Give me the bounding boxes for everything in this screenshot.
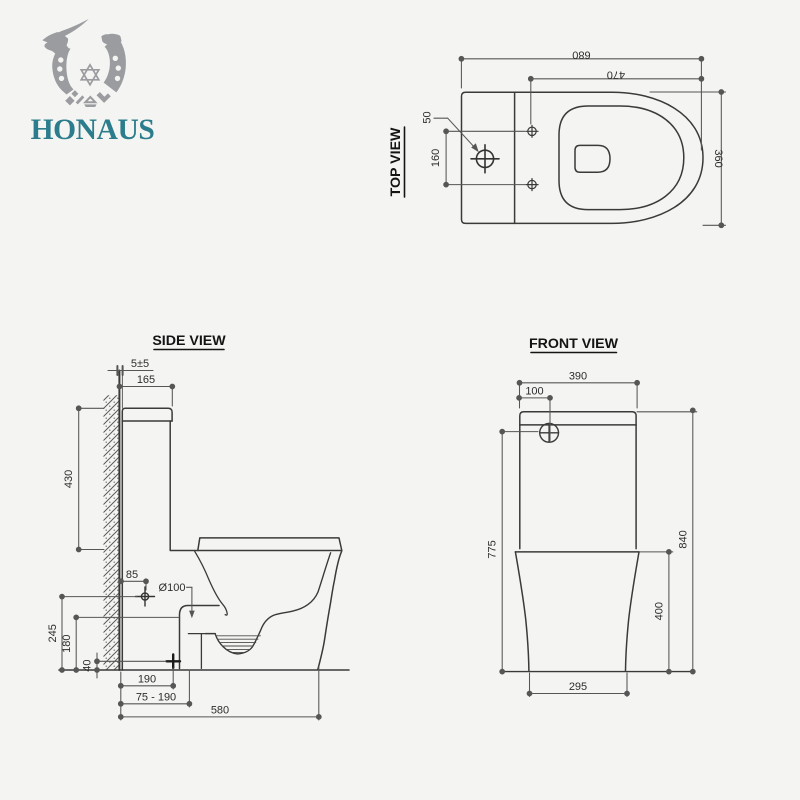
svg-text:HONAUS: HONAUS — [31, 114, 155, 146]
svg-text:840: 840 — [677, 530, 689, 548]
svg-text:680: 680 — [572, 49, 590, 61]
svg-text:50: 50 — [422, 111, 434, 123]
svg-text:430: 430 — [63, 470, 75, 488]
svg-text:580: 580 — [211, 705, 229, 717]
svg-text:400: 400 — [653, 602, 665, 620]
svg-text:40: 40 — [82, 659, 94, 671]
svg-text:FRONT VIEW: FRONT VIEW — [529, 336, 619, 352]
svg-text:TOP VIEW: TOP VIEW — [388, 127, 404, 196]
svg-text:SIDE VIEW: SIDE VIEW — [152, 333, 226, 349]
svg-text:390: 390 — [569, 370, 587, 382]
svg-text:190: 190 — [138, 673, 156, 685]
svg-text:75 - 190: 75 - 190 — [136, 691, 176, 703]
svg-text:100: 100 — [525, 386, 543, 398]
svg-text:85: 85 — [126, 569, 138, 581]
svg-text:470: 470 — [607, 69, 625, 81]
svg-text:160: 160 — [430, 149, 442, 167]
svg-text:165: 165 — [137, 374, 155, 386]
svg-text:295: 295 — [569, 681, 587, 693]
svg-text:245: 245 — [47, 624, 59, 642]
svg-text:180: 180 — [61, 635, 73, 653]
svg-text:775: 775 — [487, 540, 499, 558]
svg-text:5±5: 5±5 — [131, 358, 149, 370]
svg-text:360: 360 — [712, 149, 724, 167]
svg-text:Ø100: Ø100 — [159, 582, 186, 594]
